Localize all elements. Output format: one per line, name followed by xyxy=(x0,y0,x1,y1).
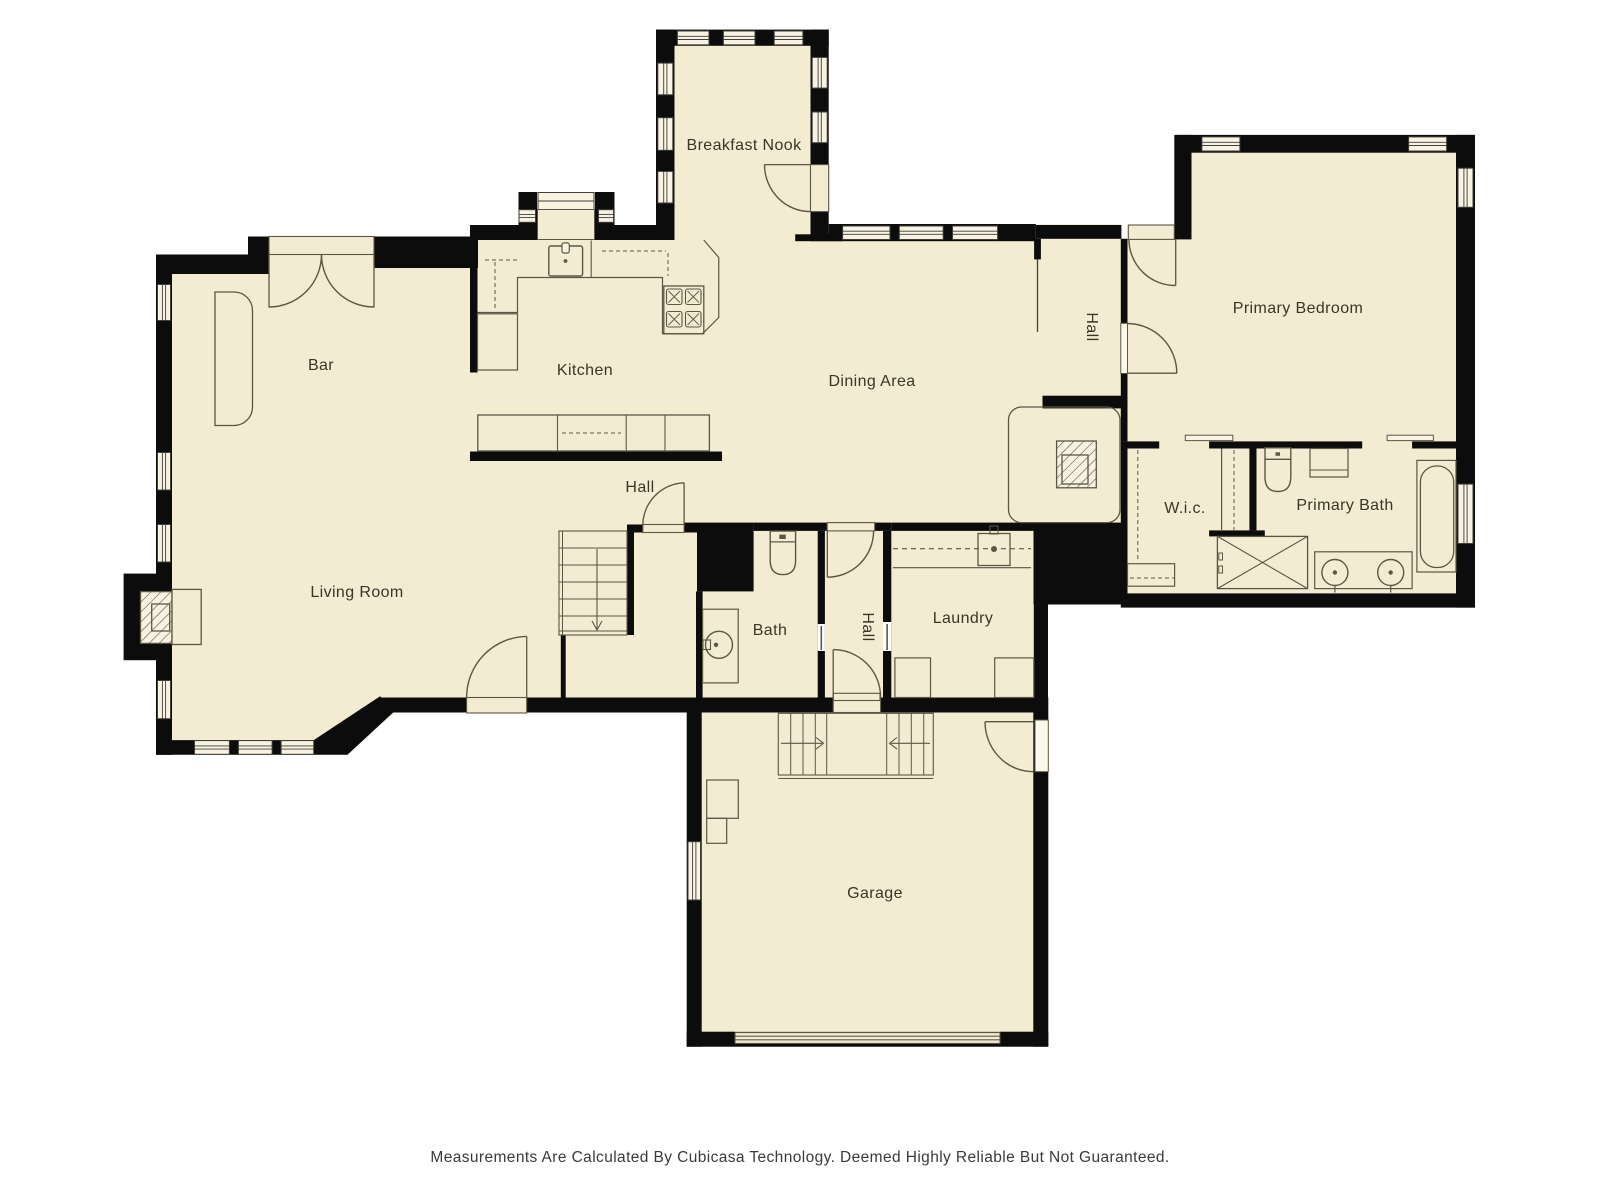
svg-text:Kitchen: Kitchen xyxy=(557,362,613,379)
svg-text:Hall: Hall xyxy=(1083,312,1100,341)
svg-text:Breakfast Nook: Breakfast Nook xyxy=(687,137,803,154)
svg-text:Hall: Hall xyxy=(859,612,876,641)
svg-text:Primary Bedroom: Primary Bedroom xyxy=(1233,300,1363,317)
svg-text:Living Room: Living Room xyxy=(310,584,403,601)
svg-text:Dining Area: Dining Area xyxy=(828,373,915,390)
svg-text:Measurements Are Calculated By: Measurements Are Calculated By Cubicasa … xyxy=(430,1149,1169,1166)
svg-text:Laundry: Laundry xyxy=(933,610,994,627)
svg-text:Primary Bath: Primary Bath xyxy=(1296,497,1393,514)
svg-text:Garage: Garage xyxy=(847,885,903,902)
svg-text:Bar: Bar xyxy=(308,357,334,374)
svg-text:Bath: Bath xyxy=(753,622,788,639)
svg-text:Hall: Hall xyxy=(625,479,654,496)
svg-text:W.i.c.: W.i.c. xyxy=(1164,500,1206,517)
